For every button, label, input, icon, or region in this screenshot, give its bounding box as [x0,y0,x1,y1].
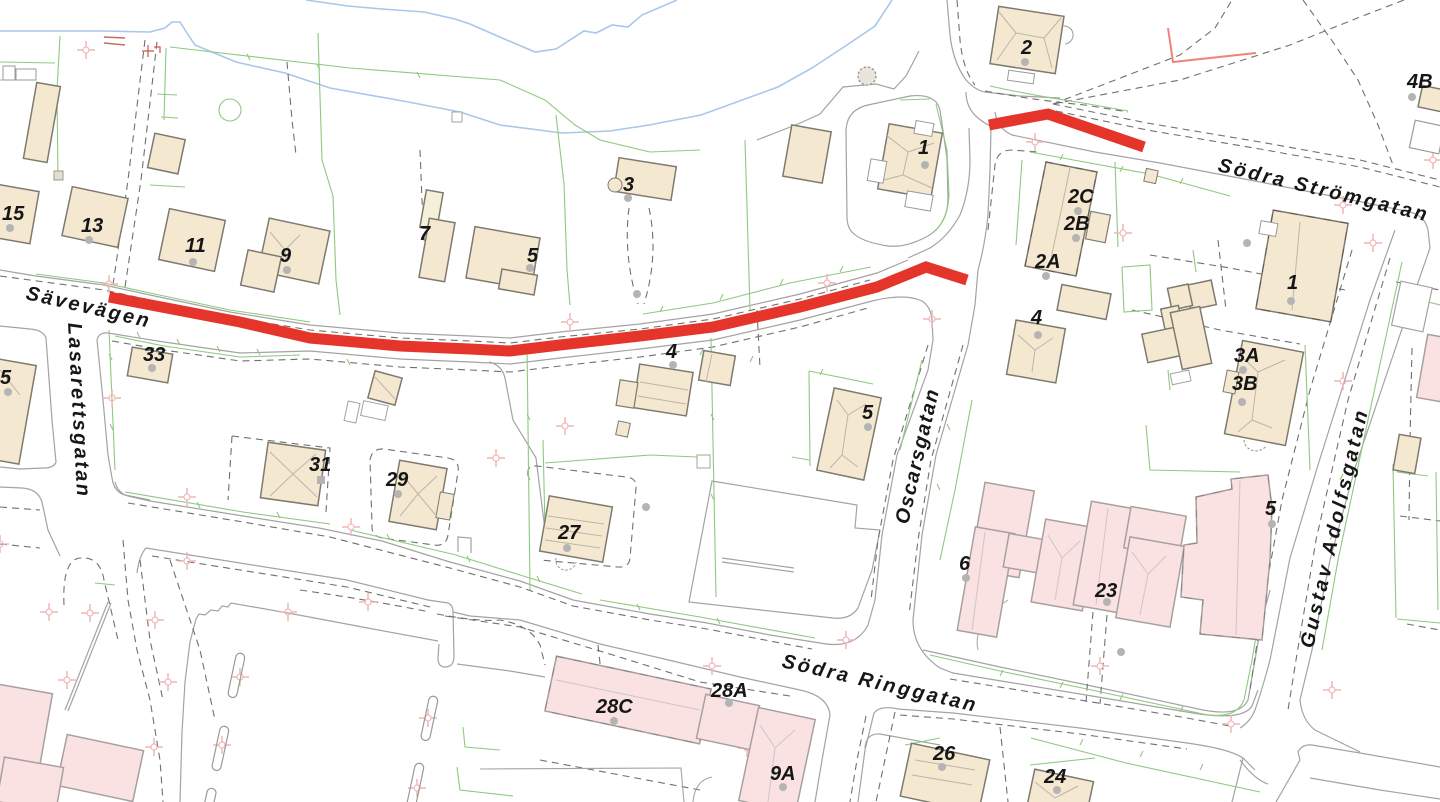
svg-text:28A: 28A [710,680,748,702]
svg-text:26: 26 [932,743,956,765]
svg-text:6: 6 [959,553,971,575]
svg-text:7: 7 [419,223,431,245]
svg-text:9: 9 [280,245,292,267]
svg-text:29: 29 [385,469,409,491]
svg-text:33: 33 [143,344,165,366]
svg-text:3B: 3B [1232,373,1258,395]
svg-text:5: 5 [1265,498,1277,520]
svg-text:3: 3 [623,174,634,196]
svg-text:24: 24 [1043,766,1066,788]
svg-text:9A: 9A [770,763,796,785]
svg-text:31: 31 [309,454,331,476]
svg-text:28C: 28C [595,696,633,718]
svg-text:2B: 2B [1063,213,1090,235]
svg-text:11: 11 [185,235,206,257]
svg-text:5: 5 [0,367,12,389]
svg-text:1: 1 [918,137,929,159]
svg-text:3A: 3A [1234,345,1260,367]
svg-text:1: 1 [1287,272,1298,294]
svg-text:5: 5 [862,402,874,424]
svg-text:5: 5 [527,245,539,267]
svg-text:4B: 4B [1406,71,1433,93]
svg-text:13: 13 [81,215,103,237]
svg-text:23: 23 [1094,580,1117,602]
svg-text:2A: 2A [1034,251,1061,273]
svg-text:4: 4 [665,341,677,363]
svg-text:27: 27 [557,522,581,544]
svg-text:15: 15 [2,203,25,225]
svg-text:2C: 2C [1067,186,1094,208]
svg-text:2: 2 [1020,37,1032,59]
svg-text:4: 4 [1030,307,1042,329]
